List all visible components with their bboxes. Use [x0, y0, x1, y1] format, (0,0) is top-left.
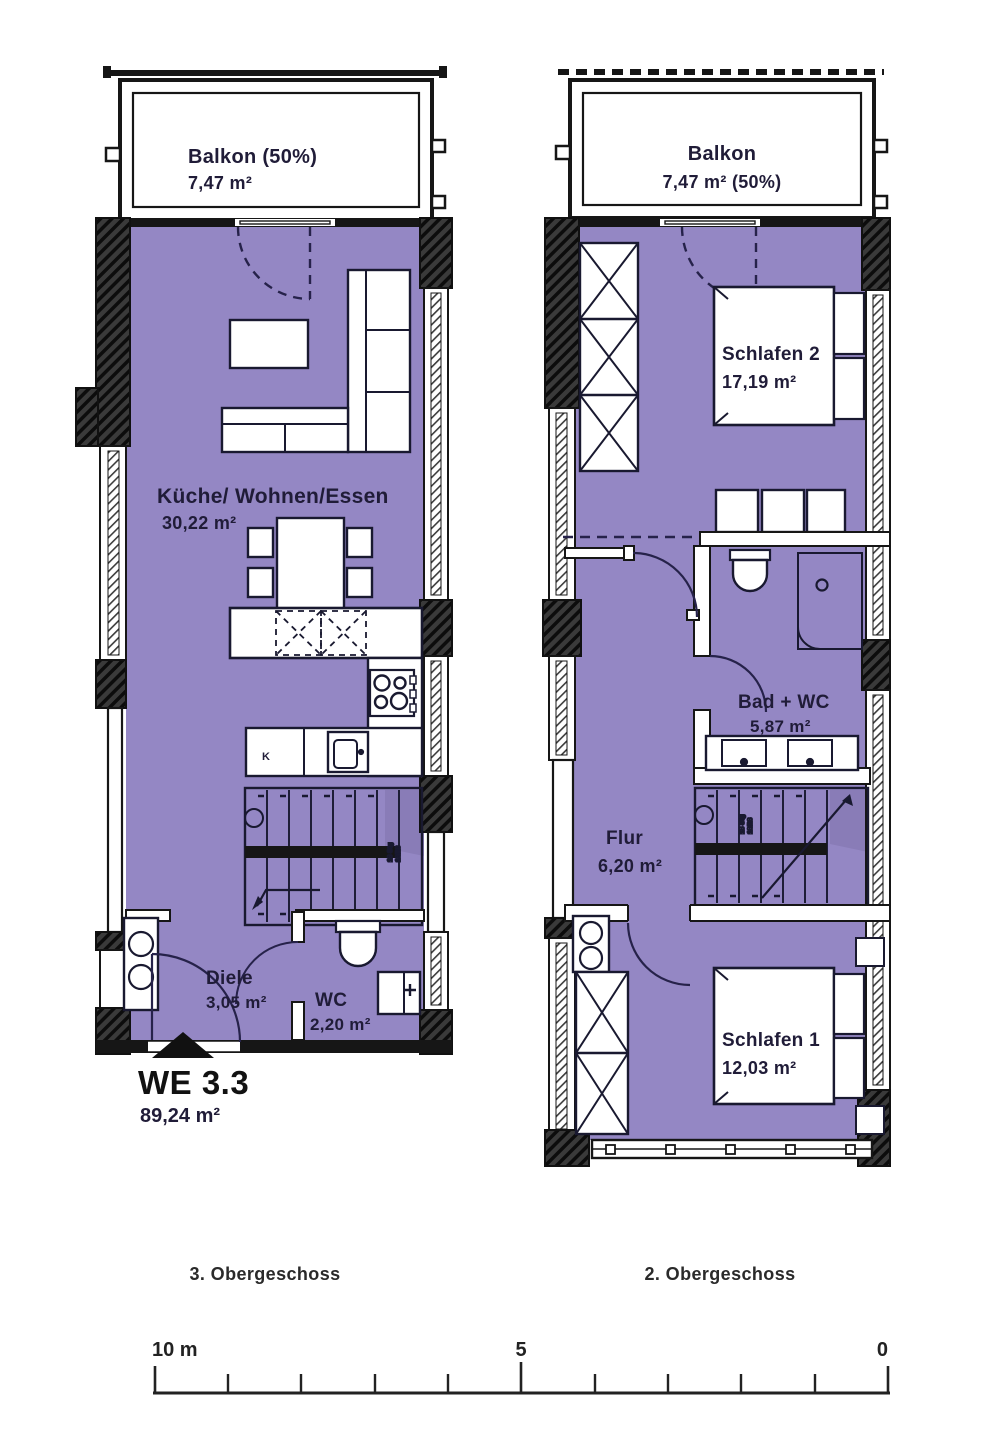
vanity	[706, 736, 858, 770]
dresser-row	[716, 490, 845, 532]
area-label-balkon-right: 7,47 m² (50%)	[663, 172, 782, 192]
left-floor-plan: K 18 Stg 18/28	[76, 66, 452, 1127]
washer-dryer-right	[573, 916, 609, 972]
room-label-balkon-right: Balkon	[688, 143, 756, 165]
room-label-balkon-left: Balkon (50%)	[188, 146, 317, 168]
hand-sink	[378, 972, 420, 1014]
coffee-table	[230, 320, 308, 368]
area-label-diele: 3,05 m²	[206, 993, 267, 1012]
cooktop	[370, 670, 416, 716]
room-label-wc: WC	[315, 990, 347, 1011]
area-label-balkon-left: 7,47 m²	[188, 173, 252, 193]
area-label-schlafen2: 17,19 m²	[722, 372, 796, 392]
scale-label-10m: 10 m	[152, 1339, 198, 1361]
fridge-label: K	[262, 751, 270, 763]
dining-chair	[347, 568, 372, 597]
scale-bar: 10 m 5 0	[152, 1339, 890, 1393]
room-label-schlafen1: Schlafen 1	[722, 1030, 820, 1051]
stair-note: 18 Stg	[739, 814, 746, 834]
toilet-bad	[730, 550, 770, 591]
room-label-flur: Flur	[606, 828, 643, 849]
stair-note: 18/28	[395, 845, 402, 862]
right-floor-plan: 18 Stg 18/28	[543, 72, 890, 1166]
dining-chair	[248, 528, 273, 557]
toilet	[336, 921, 380, 966]
kitchen-sink	[328, 732, 368, 772]
area-label-wc: 2,20 m²	[310, 1015, 371, 1034]
area-label-kueche: 30,22 m²	[162, 513, 236, 533]
room-label-schlafen2: Schlafen 2	[722, 344, 820, 365]
floor-plan-drawing: K 18 Stg 18/28	[0, 0, 986, 1440]
area-label-flur: 6,20 m²	[598, 856, 662, 876]
kitchen-island	[230, 608, 422, 658]
stair-note: 18/28	[747, 817, 754, 834]
area-label-schlafen1: 12,03 m²	[722, 1058, 796, 1078]
wardrobe-schlafen1	[576, 972, 628, 1134]
floor-title-right: 2. Obergeschoss	[644, 1264, 795, 1284]
unit-area: 89,24 m²	[140, 1105, 220, 1127]
scale-label-0: 0	[877, 1339, 888, 1361]
dining-chair	[347, 528, 372, 557]
dining-chair	[248, 568, 273, 597]
stair-note: 18 Stg	[387, 842, 394, 862]
floor-plan-sheet: K 18 Stg 18/28	[0, 0, 986, 1440]
room-label-diele: Diele	[206, 968, 253, 989]
wardrobe-schlafen2	[580, 243, 638, 471]
area-label-bad: 5,87 m²	[750, 717, 811, 736]
floor-title-left: 3. Obergeschoss	[189, 1264, 340, 1284]
unit-id: WE 3.3	[138, 1064, 249, 1101]
balcony-left	[103, 66, 447, 220]
scale-label-5: 5	[515, 1339, 526, 1361]
dining-table	[277, 518, 344, 612]
room-label-bad: Bad + WC	[738, 692, 830, 713]
room-label-kueche: Küche/ Wohnen/Essen	[157, 485, 389, 508]
